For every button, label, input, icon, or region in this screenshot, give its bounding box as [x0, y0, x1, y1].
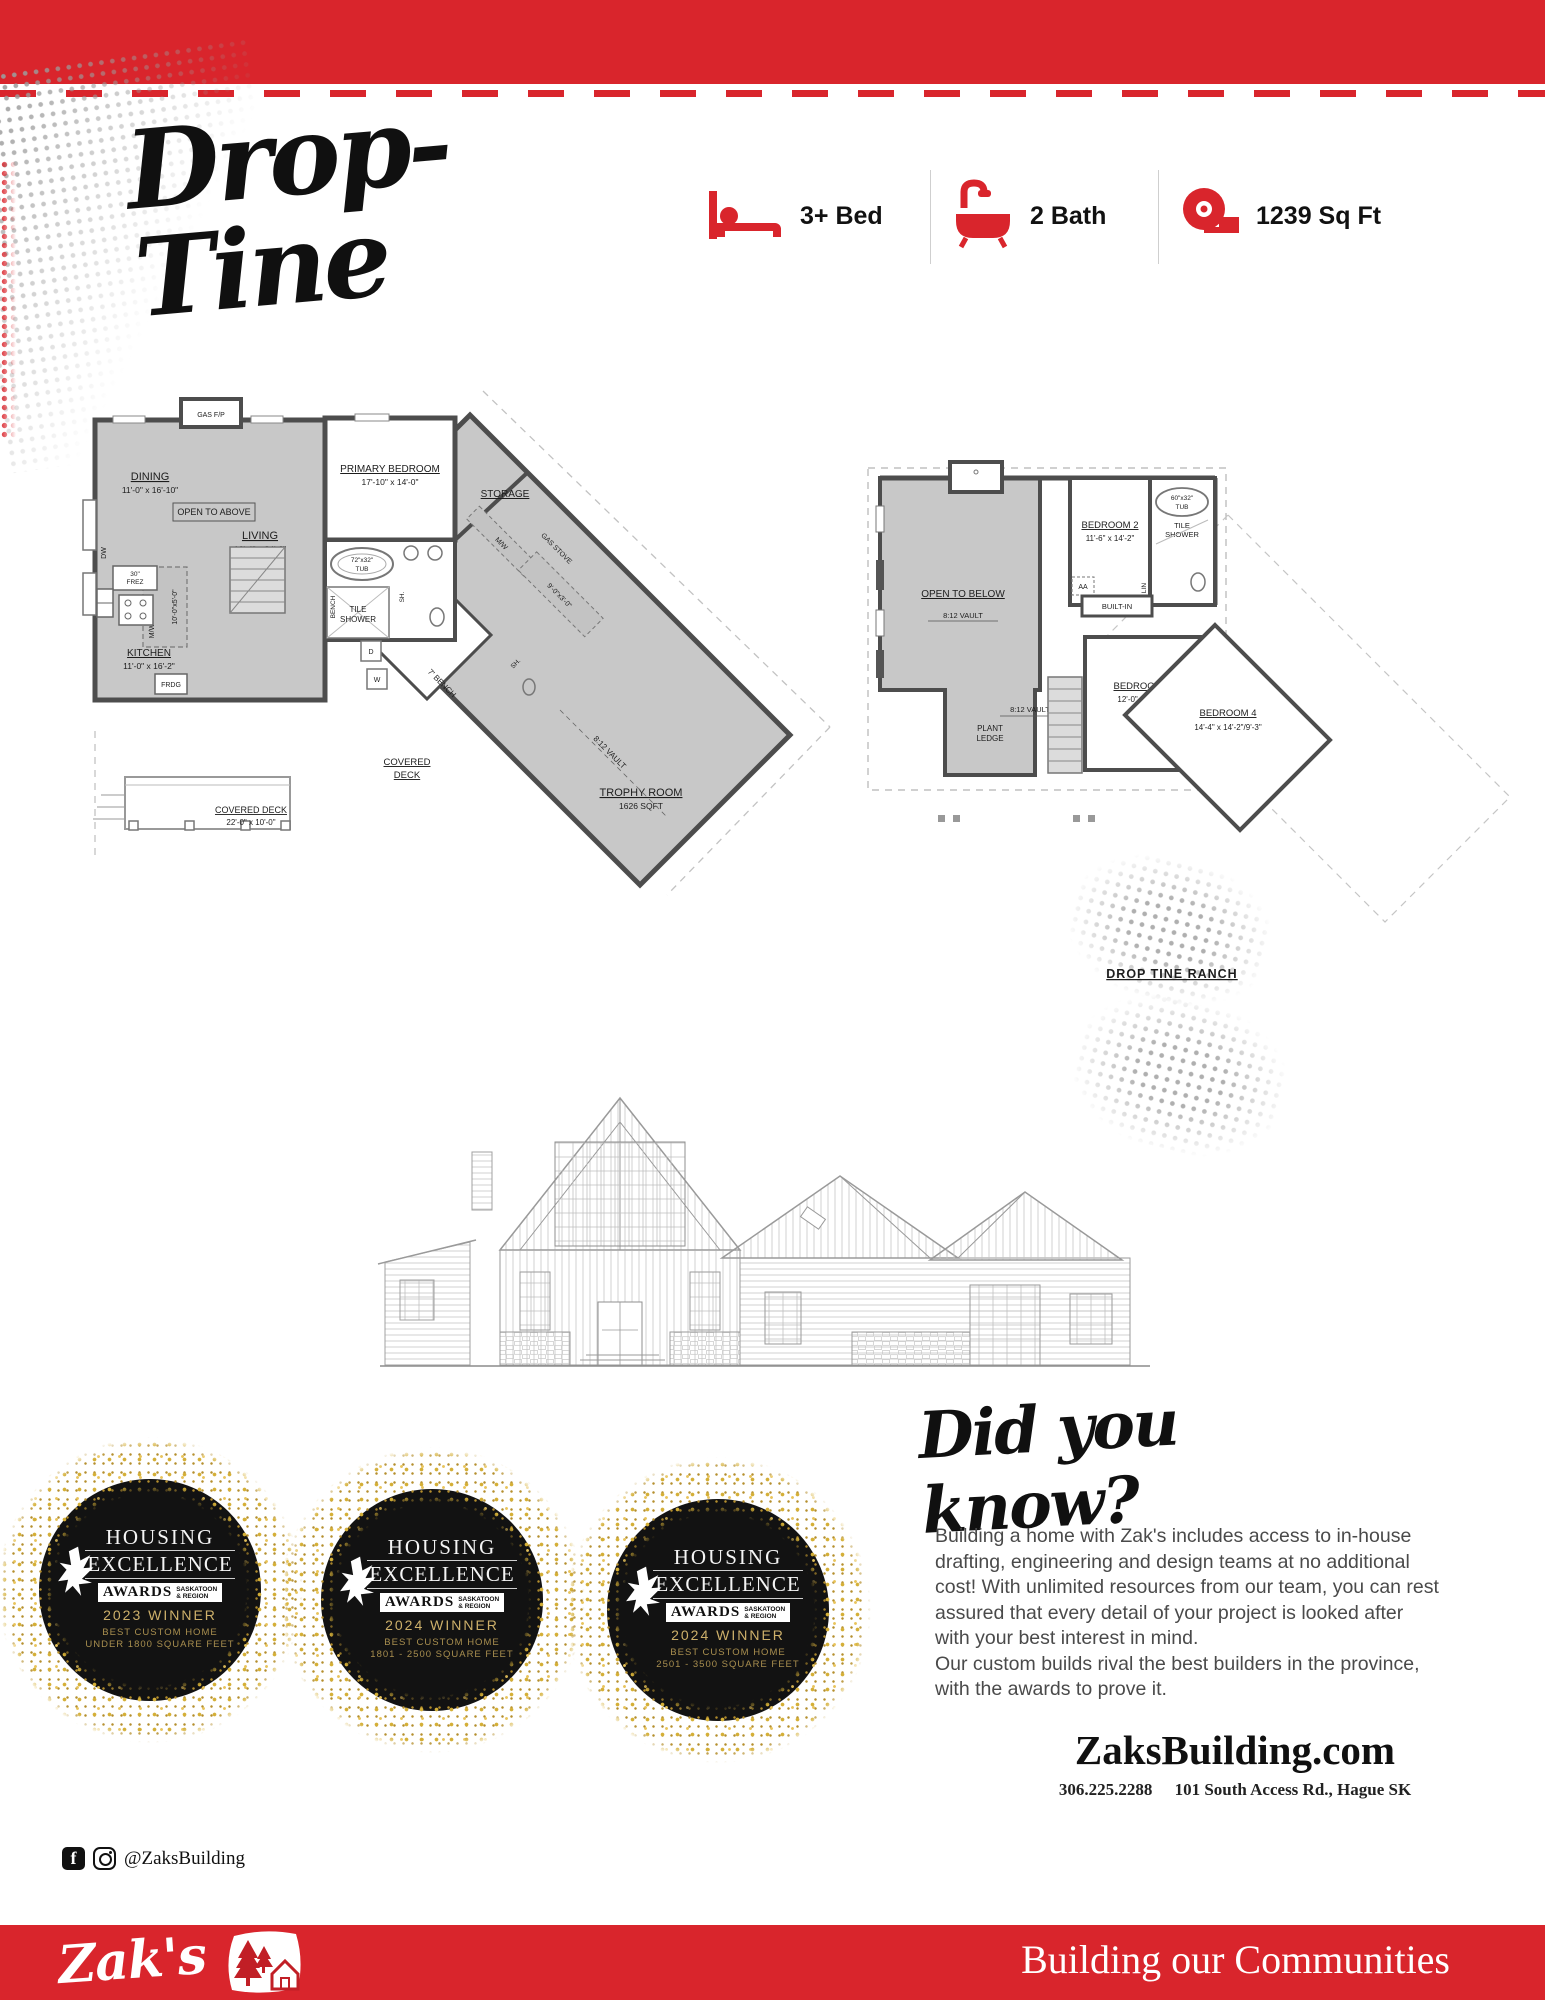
label-vault-2: 8:12 VAULT: [1010, 705, 1050, 714]
label-bedroom2: BEDROOM 2: [1081, 520, 1138, 531]
label-tile-1: TILE: [350, 605, 367, 614]
label-built-in: BUILT-IN: [1102, 602, 1132, 611]
spec-bed: 3+ Bed: [706, 168, 883, 264]
label-primary-bedroom-dims: 17'-10" x 14'-0": [361, 477, 418, 487]
label-covered-mid-1: COVERED: [384, 757, 431, 768]
label-bench: BENCH: [330, 595, 337, 618]
label-plant-2: LEDGE: [976, 734, 1003, 743]
label-covered-mid-2: DECK: [394, 770, 421, 781]
bath-icon: [952, 178, 1014, 255]
label-sh-1: SH.: [399, 591, 406, 602]
label-tub2-2: TUB: [1176, 504, 1189, 511]
label-dining: DINING: [131, 471, 170, 483]
main-floor-plan: GAS F/P DINING 11'-0" x 16'-10" OPEN TO …: [55, 295, 925, 990]
label-vault-1: 8:12 VAULT: [943, 611, 983, 620]
label-open-to-above: OPEN TO ABOVE: [177, 507, 250, 517]
label-frez-2: FREZ: [127, 579, 144, 586]
label-plant-1: PLANT: [977, 724, 1003, 733]
social-handle[interactable]: @ZaksBuilding: [124, 1848, 245, 1870]
label-dryer: D: [368, 649, 373, 656]
label-covered-deck2-dims: 22'-0" x 10'-0": [226, 818, 275, 827]
label-storage: STORAGE: [481, 489, 530, 500]
phone-number: 306.225.2288: [1059, 1780, 1153, 1799]
label-frez-1: 30": [130, 571, 140, 578]
label-open-to-below: OPEN TO BELOW: [921, 589, 1005, 600]
top-red-bar: [0, 0, 1545, 84]
award-title1: HOUSING: [69, 1525, 251, 1550]
award-category: BEST CUSTOM HOME: [351, 1637, 533, 1649]
second-floor-caption: DROP TINE RANCH: [1106, 967, 1237, 981]
label-dining-dims: 11'-0" x 16'-10": [122, 485, 178, 495]
award-category: BEST CUSTOM HOME: [69, 1627, 251, 1639]
spec-bed-label: 3+ Bed: [800, 202, 883, 231]
spec-divider-1: [930, 170, 931, 264]
label-trophy-room: TROPHY ROOM: [600, 787, 683, 799]
label-tub2-1: 60"x32": [1171, 495, 1194, 502]
label-lin: LIN: [1141, 583, 1148, 593]
red-dash-divider: [0, 90, 1545, 97]
label-washer: W: [374, 677, 381, 684]
award-year: 2023 WINNER: [69, 1607, 251, 1623]
tape-measure-icon: [1178, 182, 1240, 251]
label-tub-1: 72"x32": [351, 557, 374, 564]
facebook-icon[interactable]: f: [62, 1847, 85, 1870]
label-kitchen: KITCHEN: [127, 648, 171, 659]
label-covered-deck2: COVERED DECK: [215, 805, 287, 815]
maple-leaf-icon: [55, 1543, 95, 1606]
award-category-range: 1801 - 2500 SQUARE FEET: [351, 1649, 533, 1661]
social-row: f @ZaksBuilding: [62, 1847, 245, 1870]
bed-icon: [706, 183, 784, 250]
address: 101 South Access Rd., Hague SK: [1175, 1780, 1412, 1799]
label-bedroom2-dims: 11'-6" x 14'-2": [1086, 534, 1135, 543]
footer-tagline: Building our Communities: [1021, 1936, 1450, 1983]
spec-bath: 2 Bath: [952, 168, 1106, 264]
award-title2: EXCELLENCE: [367, 1560, 516, 1589]
award-title2: EXCELLENCE: [85, 1550, 234, 1579]
label-gas-fp: GAS F/P: [197, 412, 225, 419]
award-badge-2023: HOUSING EXCELLENCE AWARDS SASKATOON& REG…: [39, 1479, 261, 1701]
did-you-know-paragraph: Building a home with Zak's includes acce…: [935, 1524, 1535, 1703]
spec-sqft-label: 1239 Sq Ft: [1256, 202, 1381, 231]
maple-leaf-icon: [623, 1563, 663, 1626]
label-bedroom4-dims: 14'-4" x 14'-2"/9'-3": [1194, 723, 1262, 732]
instagram-icon[interactable]: [93, 1847, 116, 1870]
label-island-dims: 10'-0"x5'-0": [172, 589, 179, 625]
award-awards-row: AWARDS SASKATOON& REGION: [98, 1583, 222, 1602]
award-awards-row: AWARDS SASKATOON& REGION: [666, 1603, 790, 1622]
award-year: 2024 WINNER: [351, 1617, 533, 1633]
award-badge-2024-b: HOUSING EXCELLENCE AWARDS SASKATOON& REG…: [607, 1499, 829, 1721]
award-title2: EXCELLENCE: [653, 1570, 802, 1599]
label-bedroom4: BEDROOM 4: [1199, 708, 1256, 719]
label-kitchen-dims: 11'-0" x 16'-2": [123, 661, 175, 671]
spec-sqft: 1239 Sq Ft: [1178, 168, 1381, 264]
label-primary-bedroom: PRIMARY BEDROOM: [340, 464, 440, 475]
label-tile2-1: TILE: [1174, 521, 1190, 530]
label-aa: AA: [1078, 584, 1088, 591]
award-category-range: 2501 - 3500 SQUARE FEET: [637, 1659, 819, 1671]
house-elevation-drawing: [370, 1080, 1160, 1380]
zaks-logo: Zak's: [56, 1925, 208, 1996]
contact-line: 306.225.2288 101 South Access Rd., Hague…: [935, 1780, 1535, 1800]
label-tile-2: SHOWER: [340, 615, 376, 624]
pine-house-logo-icon: [224, 1928, 304, 2000]
label-tub-2: TUB: [356, 566, 369, 573]
label-living: LIVING: [242, 530, 278, 542]
award-category: BEST CUSTOM HOME: [637, 1647, 819, 1659]
spec-bath-label: 2 Bath: [1030, 202, 1106, 231]
red-speckle-left-edge: [0, 160, 16, 440]
award-badge-2024-a: HOUSING EXCELLENCE AWARDS SASKATOON& REG…: [321, 1489, 543, 1711]
award-year: 2024 WINNER: [637, 1627, 819, 1643]
award-awards-row: AWARDS SASKATOON& REGION: [380, 1593, 504, 1612]
award-title1: HOUSING: [637, 1545, 819, 1570]
label-frdg: FRDG: [161, 682, 181, 689]
maple-leaf-icon: [337, 1553, 377, 1616]
award-title1: HOUSING: [351, 1535, 533, 1560]
website-link[interactable]: ZaksBuilding.com: [935, 1726, 1535, 1774]
spec-divider-2: [1158, 170, 1159, 264]
label-dw: DW: [101, 547, 108, 559]
brochure-page: Drop-Tine 3+ Bed 2 Bath: [0, 0, 1545, 2000]
award-category-range: UNDER 1800 SQUARE FEET: [69, 1639, 251, 1651]
second-floor-plan: OPEN TO BELOW 8:12 VAULT PLANT LEDGE 8:1…: [860, 440, 1540, 1000]
